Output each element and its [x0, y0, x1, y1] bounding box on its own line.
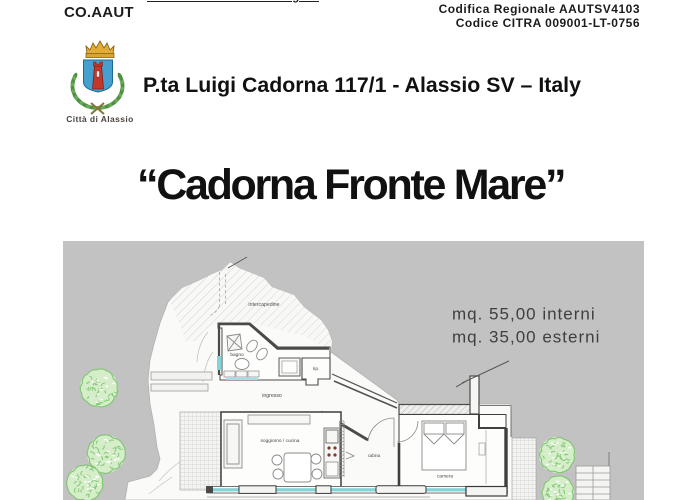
svg-text:soggiorno / cucina: soggiorno / cucina	[261, 438, 300, 444]
svg-text:camera: camera	[437, 474, 453, 480]
svg-text:cabina: cabina	[368, 453, 381, 458]
svg-text:rip.: rip.	[313, 366, 320, 372]
svg-text:ingresso: ingresso	[262, 393, 282, 399]
svg-text:mq. 35,00 esterni: mq. 35,00 esterni	[452, 328, 600, 347]
svg-text:mq. 55,00 interni: mq. 55,00 interni	[452, 305, 596, 324]
svg-text:intercapedine: intercapedine	[248, 302, 279, 308]
svg-text:bagno: bagno	[230, 352, 244, 358]
